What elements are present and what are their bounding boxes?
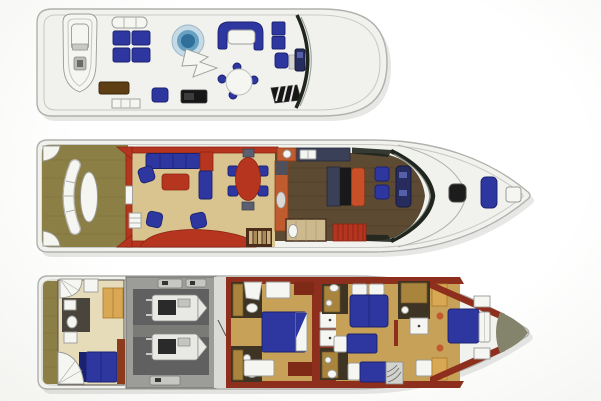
swim-platform	[43, 281, 58, 384]
sink	[402, 307, 409, 314]
toilet	[67, 316, 77, 328]
master-vanity	[266, 282, 290, 298]
port-engine	[146, 295, 207, 321]
toilet	[247, 304, 258, 313]
crew-cabin	[58, 279, 125, 385]
shower-stall	[416, 360, 432, 376]
deck-lower	[38, 276, 533, 394]
foredeck-hatch	[449, 184, 466, 202]
his-bath	[231, 282, 262, 318]
crew-seat	[152, 88, 168, 102]
crew-cabinet	[84, 279, 98, 292]
settee-table	[228, 30, 255, 44]
vip-nightstand-top	[474, 296, 490, 307]
master-cabinet	[294, 282, 314, 295]
galley-basin	[277, 192, 286, 208]
toilet	[328, 370, 337, 378]
guest-bath-aft-top	[322, 284, 348, 314]
aft-steps	[112, 99, 140, 108]
vip-stool	[437, 345, 444, 352]
salon-door	[126, 186, 133, 204]
helm-step	[289, 55, 295, 69]
coffee-table	[162, 174, 189, 190]
stairs-hatch	[271, 85, 301, 104]
twin-berth-bottom	[348, 362, 388, 382]
tender-windshield	[73, 44, 88, 50]
helm-chair	[275, 53, 288, 68]
sink	[325, 357, 331, 363]
master-settee	[288, 362, 312, 376]
master-bench	[244, 360, 274, 376]
galley-stove	[283, 150, 291, 158]
twin-berth-mid	[334, 334, 377, 353]
helm-console	[295, 49, 305, 71]
galley-island	[327, 167, 365, 206]
foredeck-sun-pad	[481, 177, 497, 208]
sink	[326, 300, 332, 306]
wet-bar	[99, 82, 129, 94]
helm-chair-stbd	[375, 185, 389, 199]
pilothouse-console	[396, 166, 411, 207]
starboard-engine	[146, 334, 207, 360]
tender-boat	[63, 14, 97, 92]
dining-table	[236, 158, 261, 201]
day-head	[286, 219, 326, 241]
dining-chair-end	[243, 149, 254, 157]
mid-stairs	[386, 362, 403, 384]
grill	[181, 90, 207, 103]
davit	[112, 17, 147, 28]
guest-bath-aft-bottom	[320, 348, 348, 380]
master-berth	[262, 312, 307, 352]
pilothouse-bench	[352, 168, 365, 206]
helm-chair-port	[375, 167, 389, 181]
aft-bench	[64, 165, 75, 229]
vip-berth	[448, 309, 490, 343]
shower	[244, 282, 262, 300]
vip-nightstand-bottom	[474, 348, 490, 359]
deck-flybridge	[37, 9, 391, 121]
salon-cabinet	[129, 213, 141, 228]
toilet	[289, 225, 298, 238]
deck-main	[37, 140, 534, 257]
crew-locker	[117, 339, 125, 384]
yacht-deck-plans	[0, 0, 601, 401]
salon-stairs	[246, 228, 272, 247]
corridor-wall	[394, 320, 398, 346]
vip-stool	[437, 313, 444, 320]
dining-chair-end	[242, 202, 254, 210]
guest-double-berth	[350, 284, 388, 327]
companionway-stairs	[333, 224, 366, 241]
aft-table	[81, 172, 98, 222]
corner-cabinet	[200, 152, 213, 171]
engine-room	[126, 277, 226, 388]
crew-berth	[79, 352, 117, 382]
toilet	[330, 285, 339, 292]
yacht-plan-image	[0, 0, 601, 401]
anchor-locker	[506, 187, 521, 202]
chain-locker	[496, 312, 528, 353]
